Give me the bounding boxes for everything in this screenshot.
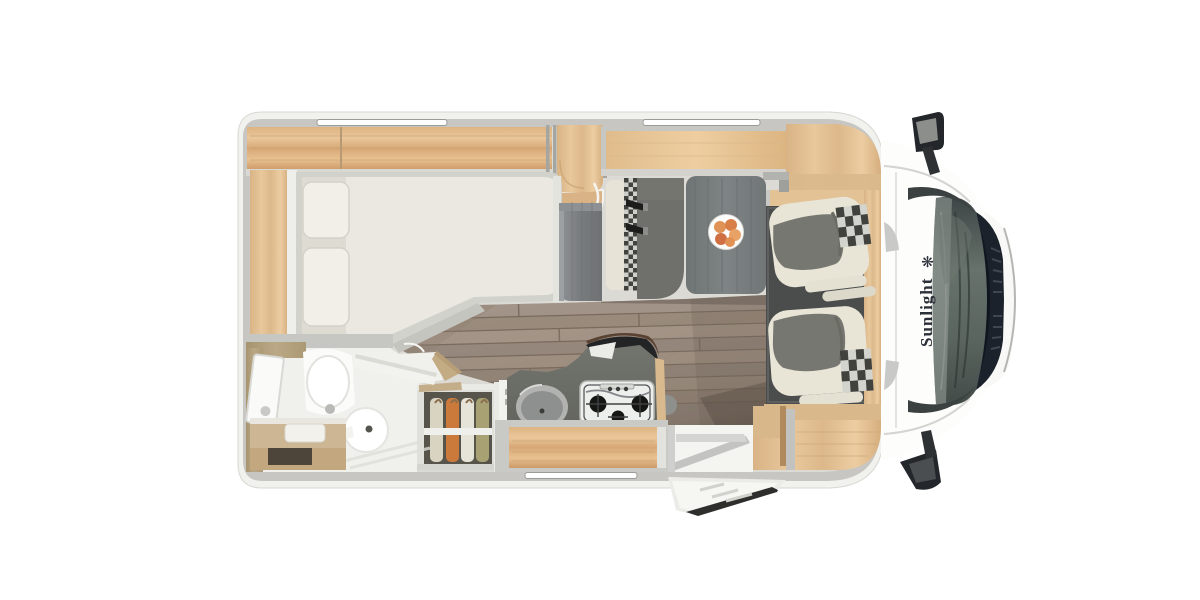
svg-text:❋: ❋	[920, 255, 937, 268]
svg-text:Sunlight: Sunlight	[917, 278, 936, 347]
